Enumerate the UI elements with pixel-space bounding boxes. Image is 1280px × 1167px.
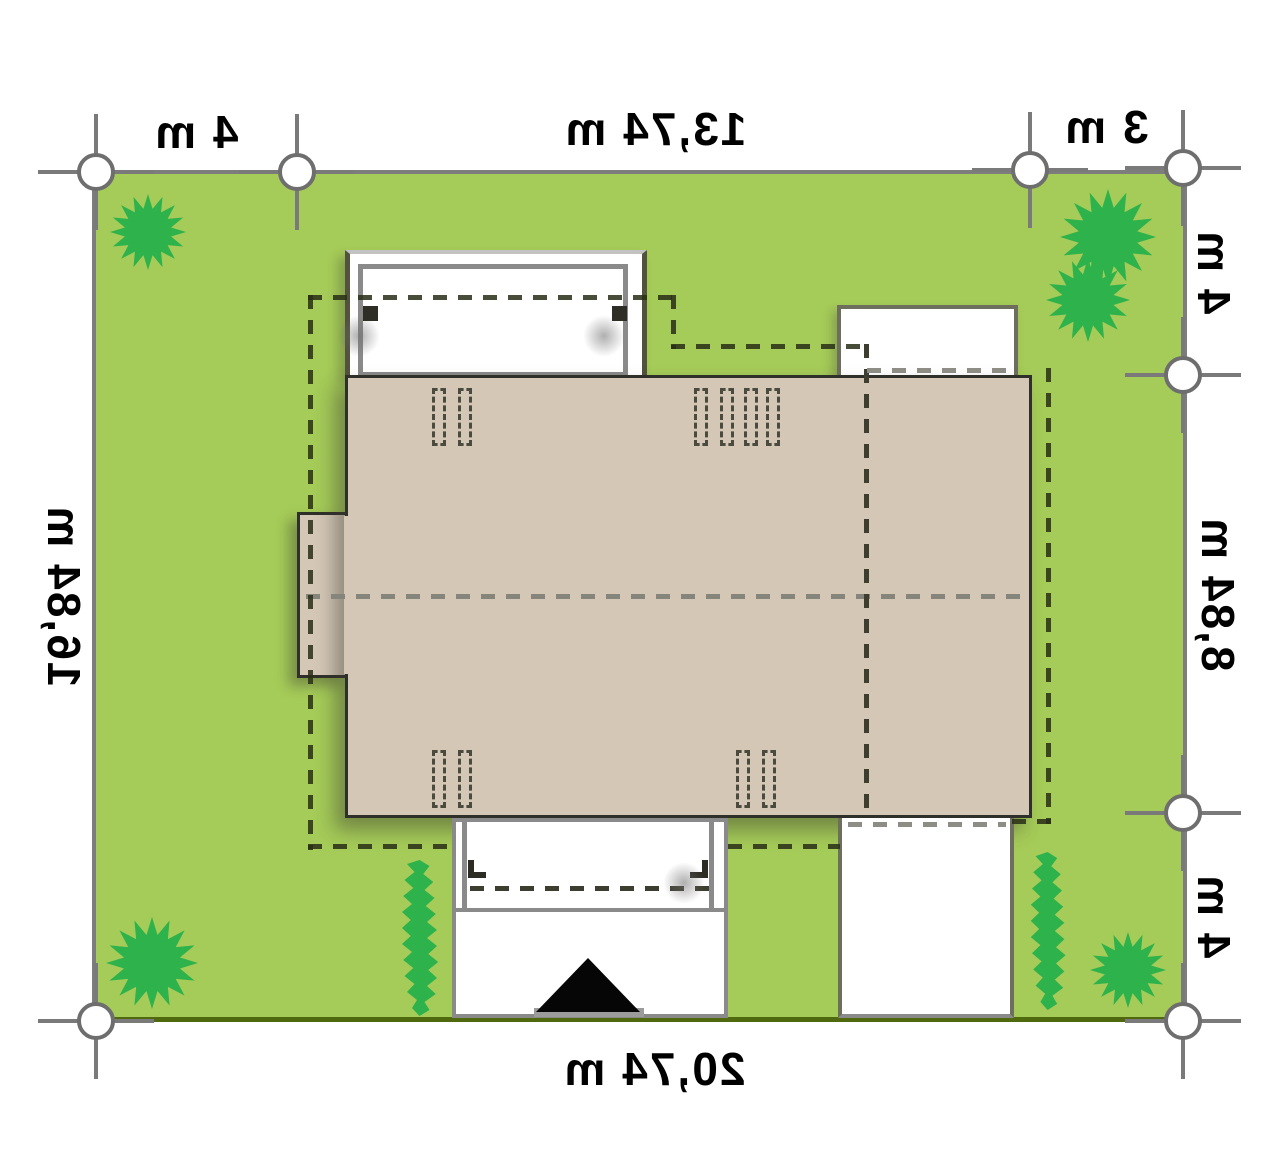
- setback-line: [728, 844, 840, 849]
- roof-window: [432, 388, 446, 446]
- garage-driveway: [838, 818, 1014, 1018]
- shadow-smudge: [663, 862, 705, 904]
- setback-line: [308, 844, 453, 849]
- dimension-label-bottom-center: 20,74 m: [514, 1046, 794, 1092]
- porch-corner-mark: [468, 860, 486, 878]
- setback-line: [1046, 368, 1051, 824]
- dimension-label-right-center: 8,84 m: [1195, 474, 1241, 714]
- dimension-label-top-left: 4 m: [116, 109, 276, 155]
- setback-line: [671, 344, 869, 349]
- shadow-smudge: [338, 315, 380, 357]
- roof-window: [762, 750, 776, 808]
- dimension-label-right-top: 4 m: [1191, 192, 1237, 352]
- setback-line: [308, 295, 313, 850]
- terrace-corner-mark: [612, 306, 627, 321]
- porch-column: [709, 818, 714, 912]
- dimension-label-right-bottom: 4 m: [1191, 836, 1237, 996]
- roof-overhang-line: [867, 368, 1015, 373]
- porch-column: [462, 818, 467, 912]
- roof-division-line: [864, 344, 869, 818]
- setback-line: [1012, 819, 1052, 824]
- dimension-label-left-center: 16,84 m: [41, 476, 87, 716]
- roof-window: [694, 388, 708, 446]
- roof-window: [458, 750, 472, 808]
- roof-window: [432, 750, 446, 808]
- entrance-arrow-icon: [536, 958, 640, 1012]
- garage-door-line: [848, 822, 1006, 827]
- setback-line: [308, 295, 676, 300]
- roof-window: [736, 750, 750, 808]
- terrace-corner-mark: [363, 306, 378, 321]
- survey-marker-icon: [36, 961, 156, 1081]
- setback-line: [671, 295, 676, 349]
- shadow-smudge: [583, 315, 625, 357]
- site-plan: 4 m 13,74 m 3 m 4 m 8,84 m 4 m 16,84 m 2…: [0, 0, 1280, 1167]
- dimension-label-top-right: 3 m: [1026, 104, 1186, 150]
- dimension-label-top-center: 13,74 m: [525, 106, 785, 152]
- roof-window: [458, 388, 472, 446]
- roof-window: [766, 388, 780, 446]
- roof-window: [720, 388, 734, 446]
- roof-window: [744, 388, 758, 446]
- roof-ridge-line: [306, 594, 1028, 599]
